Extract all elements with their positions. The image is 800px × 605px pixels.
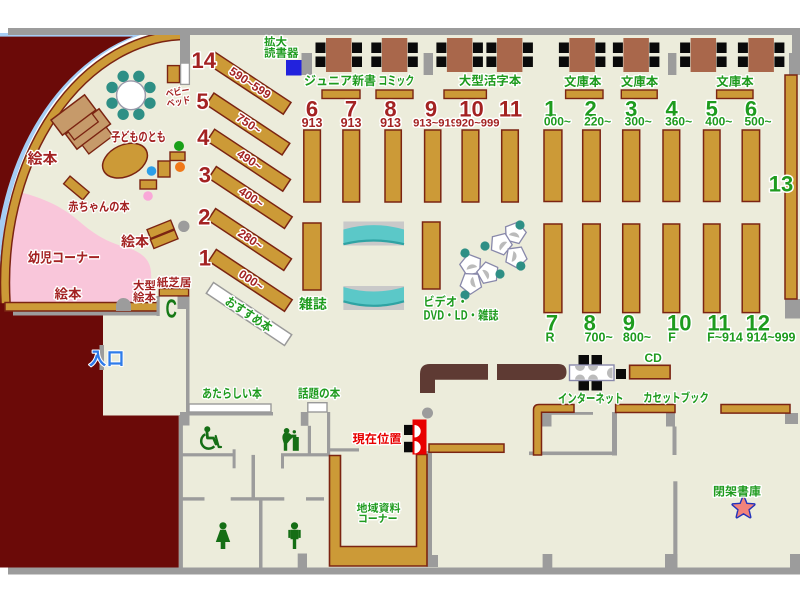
svg-text:914~999: 914~999 <box>746 331 795 345</box>
svg-text:5: 5 <box>196 89 208 114</box>
svg-text:13: 13 <box>769 172 793 197</box>
svg-text:913: 913 <box>341 116 362 130</box>
svg-text:11: 11 <box>499 96 522 121</box>
svg-text:913: 913 <box>302 116 323 130</box>
svg-text:C: C <box>166 294 177 323</box>
svg-text:3: 3 <box>199 162 211 187</box>
svg-text:4: 4 <box>197 125 210 150</box>
svg-text:000~: 000~ <box>544 114 571 128</box>
svg-text:800~: 800~ <box>623 331 651 345</box>
svg-text:500~: 500~ <box>744 114 771 128</box>
svg-text:F: F <box>668 331 676 345</box>
svg-text:913: 913 <box>380 116 401 130</box>
svg-text:700~: 700~ <box>585 331 613 345</box>
svg-text:14: 14 <box>191 48 216 73</box>
svg-text:220~: 220~ <box>584 114 611 128</box>
svg-text:2: 2 <box>198 204 210 229</box>
svg-text:CD: CD <box>645 351 663 365</box>
svg-text:1: 1 <box>199 245 211 270</box>
svg-text:913~919: 913~919 <box>413 118 457 130</box>
svg-text:R: R <box>545 331 554 345</box>
svg-text:F~914: F~914 <box>707 331 743 345</box>
svg-text:360~: 360~ <box>665 114 692 128</box>
svg-text:300~: 300~ <box>625 114 652 128</box>
svg-text:400~: 400~ <box>705 114 732 128</box>
svg-text:920~999: 920~999 <box>456 118 500 130</box>
